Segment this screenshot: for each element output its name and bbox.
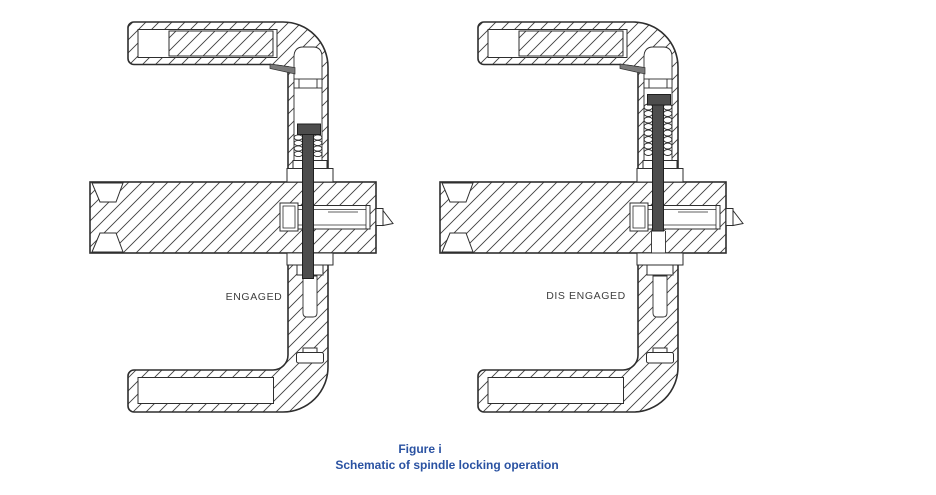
screw-tip-boss — [376, 209, 383, 226]
lock-pin — [653, 105, 664, 231]
spring-coil — [644, 124, 652, 130]
spring-coil — [664, 150, 672, 156]
spring-coil — [294, 146, 302, 151]
spring-coil — [644, 130, 652, 136]
bottom-arm-cavity — [488, 378, 624, 404]
pin-guide — [294, 79, 322, 88]
spring-coil — [644, 143, 652, 149]
bottom-arm-cavity — [138, 378, 274, 404]
lower-shank-slot — [303, 276, 317, 317]
end-plug — [647, 353, 674, 364]
spindle-lock-figure: ENGAGED DIS ENGAGED — [0, 0, 936, 430]
engaged-view: ENGAGED — [90, 22, 393, 412]
lock-pin-head — [298, 124, 321, 135]
spring-coil — [664, 130, 672, 136]
lock-pin-head — [648, 95, 671, 106]
spring-coil — [314, 135, 322, 140]
spring-coil — [664, 143, 672, 149]
spring-coil — [664, 111, 672, 117]
spring-coil — [644, 150, 652, 156]
spring-coil — [644, 137, 652, 143]
screw-tip-boss — [726, 209, 733, 226]
engaged-state-label: ENGAGED — [226, 291, 283, 303]
lower-collar-step — [647, 265, 673, 275]
spring-coil — [294, 140, 302, 145]
spring-coil — [664, 117, 672, 123]
screw-tip — [383, 211, 393, 226]
spring-coil — [664, 124, 672, 130]
screw-tip — [733, 211, 743, 226]
document-page: ENGAGED DIS ENGAGED Figure i Schematic o… — [0, 0, 936, 495]
figure-number: Figure i — [398, 442, 441, 456]
figure-title: Schematic of spindle locking operation — [335, 458, 558, 472]
end-plug — [297, 353, 324, 364]
lower-collar — [637, 253, 683, 265]
spring-coil — [644, 117, 652, 123]
spring-coil — [314, 140, 322, 145]
disengaged-state-label: DIS ENGAGED — [546, 290, 626, 302]
spring-coil — [314, 146, 322, 151]
lock-pin — [303, 135, 314, 279]
top-arm-core — [519, 31, 623, 56]
pin-guide — [644, 79, 672, 88]
pin-hole-bg — [652, 231, 666, 253]
spring-coil — [294, 151, 302, 156]
spring-coil — [294, 135, 302, 140]
disengaged-view: DIS ENGAGED — [440, 22, 743, 412]
top-arm-core — [169, 31, 273, 56]
spring-coil — [314, 151, 322, 156]
lower-shank-slot — [653, 276, 667, 317]
spring-coil — [644, 111, 652, 117]
spring-coil — [664, 137, 672, 143]
